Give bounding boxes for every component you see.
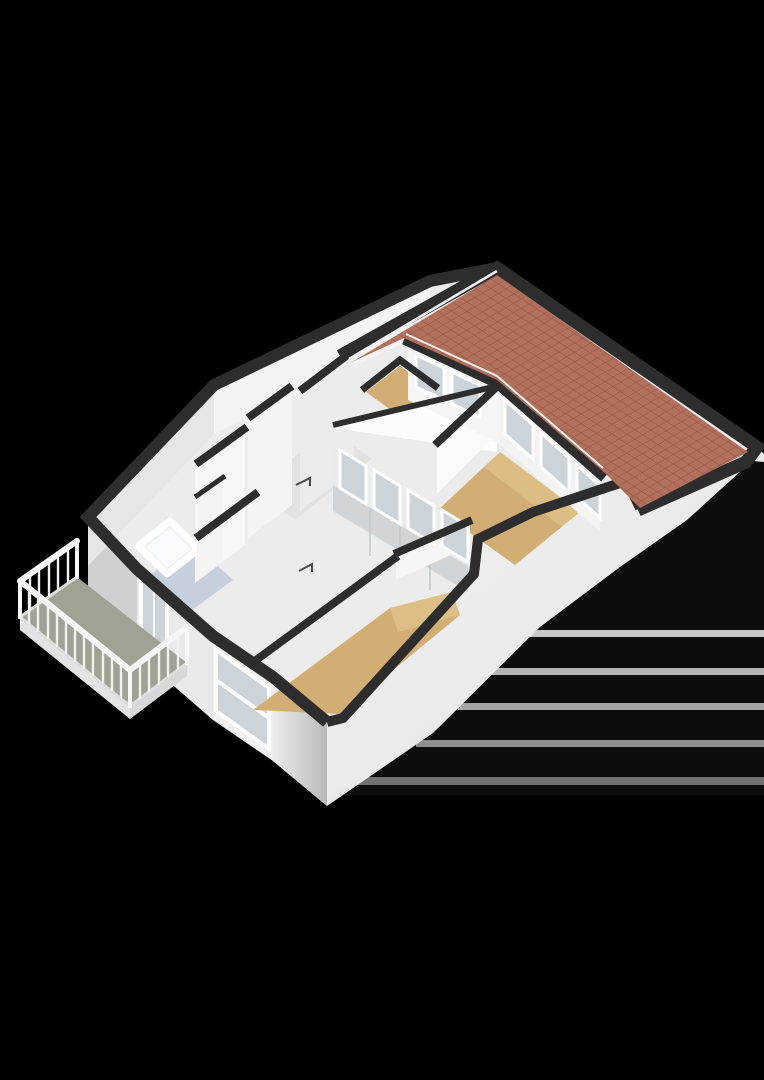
shadow-band bbox=[458, 703, 764, 710]
shadow-band bbox=[416, 740, 764, 747]
floorplan-3d-render bbox=[0, 0, 764, 1080]
shadow-band bbox=[492, 668, 764, 675]
shadow-band bbox=[344, 777, 764, 785]
shadow-band bbox=[528, 630, 764, 637]
